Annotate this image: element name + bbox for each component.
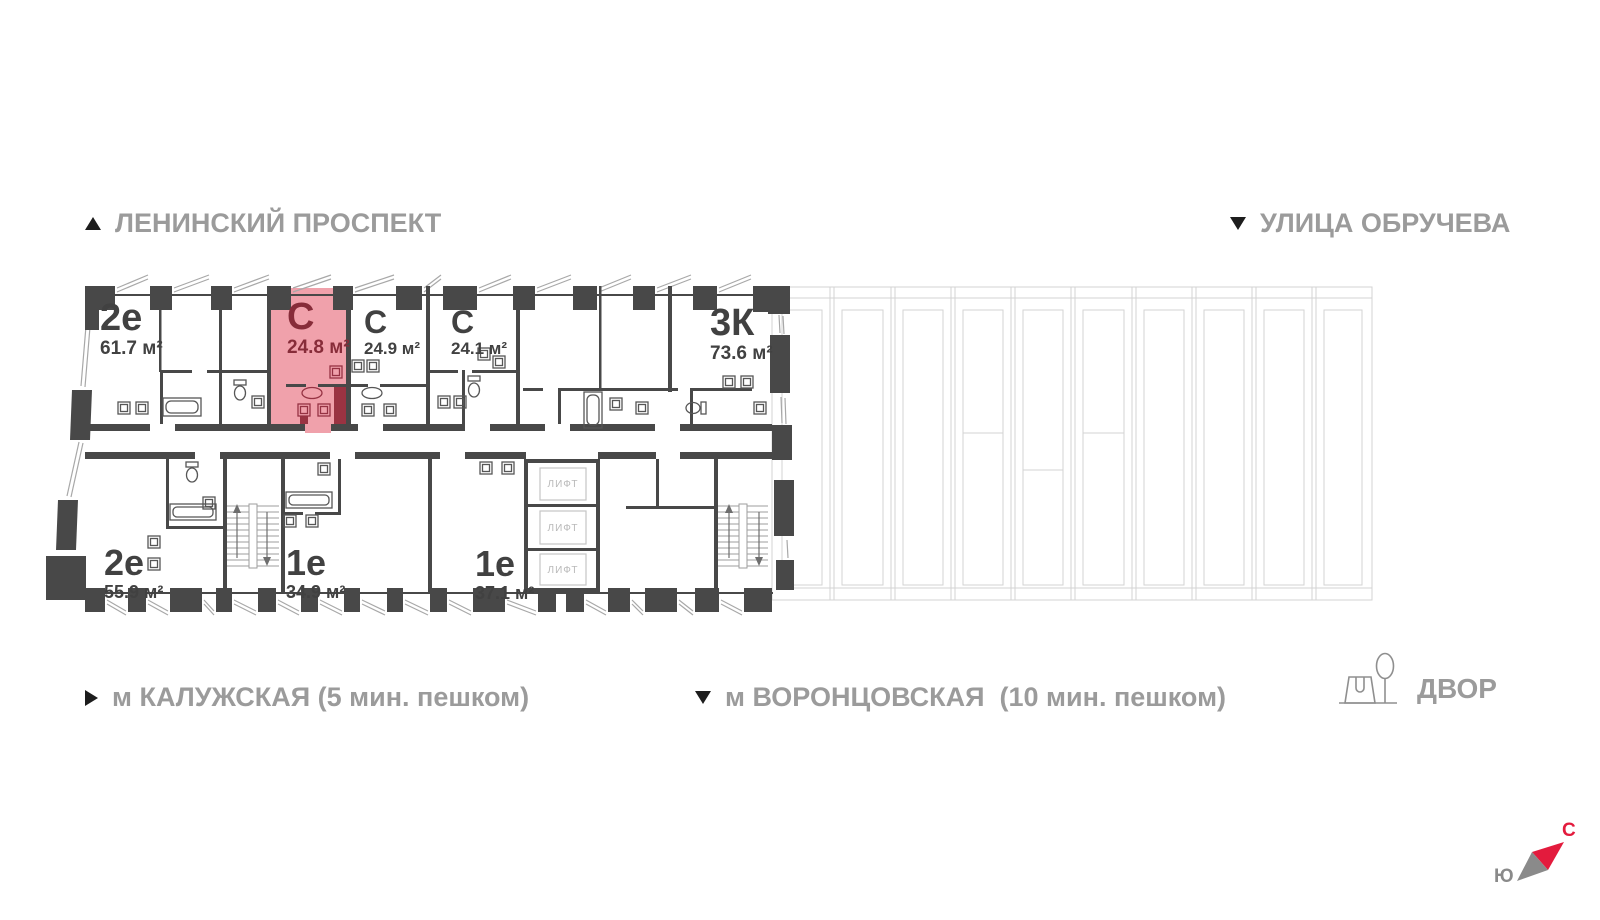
metro-label-vorontsovskaya: м ВОРОНЦОВСКАЯ (10 мин. пешком) xyxy=(695,682,1226,713)
compass-south-label: Ю xyxy=(1494,866,1514,888)
unit-label-s-24-9[interactable]: С 24.9 м² xyxy=(364,307,420,357)
yard-playground-tree-icon xyxy=(1337,652,1399,706)
metro-label-kaluzhskaya: м КАЛУЖСКАЯ (5 мин. пешком) xyxy=(85,682,529,713)
lift-label: ЛИФТ xyxy=(540,565,586,576)
compass-icon xyxy=(1440,790,1600,920)
unit-label-s-24-8-selected[interactable]: С 24.8 м² xyxy=(287,299,350,357)
yard-name: ДВОР xyxy=(1417,673,1497,706)
lift-label: ЛИФТ xyxy=(540,523,586,534)
triangle-down-icon xyxy=(695,691,711,704)
unit-label-s-24-1[interactable]: С 24.1 м² xyxy=(451,307,507,357)
metro-name: м ВОРОНЦОВСКАЯ (10 мин. пешком) xyxy=(725,682,1226,713)
staircase-right xyxy=(718,504,768,568)
staircase-left xyxy=(227,504,279,568)
floor-plan-drawing xyxy=(0,0,1600,920)
unit-label-3k-73-6[interactable]: 3К 73.6 м² xyxy=(710,305,773,363)
yard-label-block: ДВОР xyxy=(1337,652,1497,706)
unit-label-1e-37-1[interactable]: 1е 37.1 м² xyxy=(475,547,534,602)
compass-north-label: С xyxy=(1562,820,1576,842)
triangle-right-icon xyxy=(85,690,98,706)
lift-label: ЛИФТ xyxy=(540,479,586,490)
unit-label-1e-34-9[interactable]: 1е 34.9 м² xyxy=(286,546,345,601)
inactive-section xyxy=(772,287,1372,600)
unit-label-2e-61-7[interactable]: 2е 61.7 м² xyxy=(100,300,163,358)
metro-name: м КАЛУЖСКАЯ (5 мин. пешком) xyxy=(112,682,529,713)
unit-label-2e-55-9[interactable]: 2е 55.9 м² xyxy=(104,546,163,601)
